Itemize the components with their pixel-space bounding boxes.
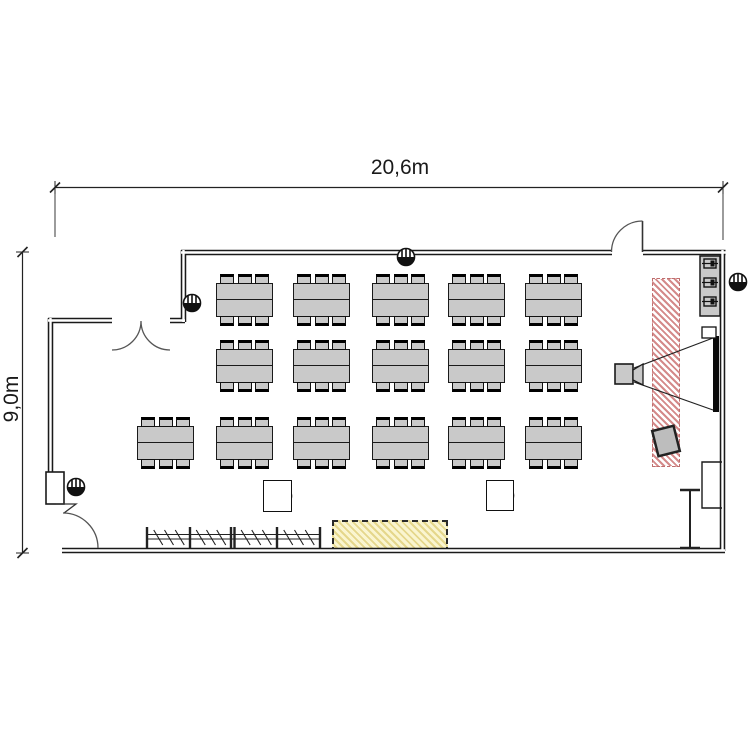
coat-hook bbox=[252, 530, 261, 545]
coat-hook bbox=[154, 530, 163, 545]
coat-hook bbox=[295, 530, 304, 545]
utility-marker-icon bbox=[398, 249, 415, 266]
equipment-layer bbox=[68, 249, 747, 549]
coat-hook bbox=[217, 530, 226, 545]
wall-pilaster bbox=[46, 472, 64, 504]
coat-hook bbox=[284, 530, 293, 545]
coat-hook bbox=[175, 530, 184, 545]
utility-marker-icon bbox=[497, 487, 514, 504]
coat-hook bbox=[305, 530, 314, 545]
coat-hook bbox=[241, 530, 250, 545]
floor-plan-canvas: 20,6m 9,0m bbox=[0, 0, 750, 750]
room-height-label: 9,0m bbox=[0, 349, 24, 449]
coat-hook bbox=[262, 530, 271, 545]
floor-plan-drawing bbox=[0, 0, 750, 750]
radiator bbox=[680, 490, 700, 548]
walls bbox=[46, 250, 726, 551]
coat-hook bbox=[165, 530, 174, 545]
wall-niche bbox=[702, 462, 722, 508]
coat-rack bbox=[147, 527, 320, 548]
projection-screen bbox=[713, 336, 719, 412]
wall-outline bbox=[48, 250, 726, 551]
utility-marker-icon bbox=[68, 479, 85, 496]
coat-hook bbox=[196, 530, 205, 545]
projector bbox=[615, 364, 633, 384]
projection-cone-line bbox=[634, 382, 713, 410]
top-right-door bbox=[612, 221, 643, 252]
bottom-left-door bbox=[56, 504, 98, 548]
projection-cone-line bbox=[634, 338, 713, 368]
wall-core bbox=[48, 250, 726, 551]
coat-hook bbox=[207, 530, 216, 545]
room-width-label: 20,6m bbox=[330, 156, 470, 180]
wall-box bbox=[702, 327, 716, 338]
flipchart bbox=[652, 426, 680, 457]
utility-marker-icon bbox=[275, 488, 292, 505]
sideboard bbox=[700, 256, 720, 316]
doors bbox=[56, 221, 643, 548]
utility-marker-icon bbox=[730, 274, 747, 291]
utility-marker-icon bbox=[184, 295, 201, 312]
double-door bbox=[112, 321, 170, 350]
